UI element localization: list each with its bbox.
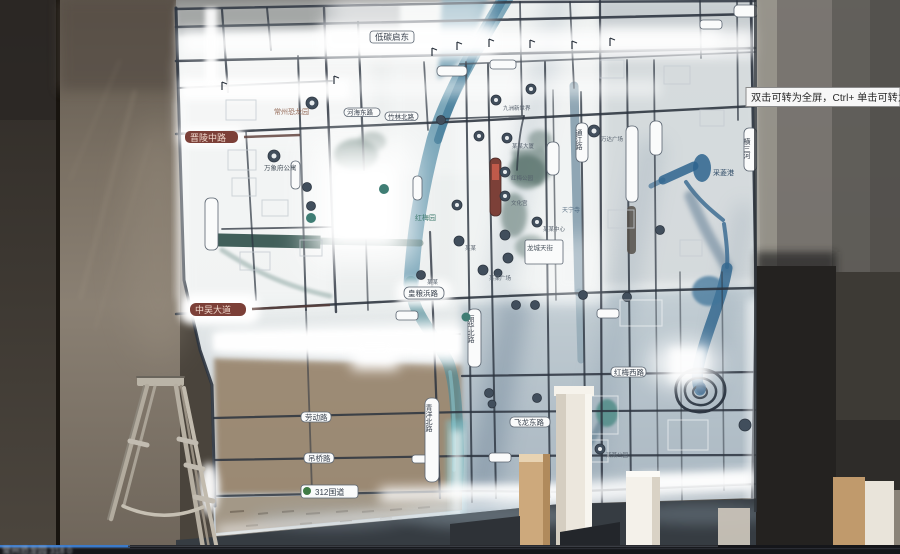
svg-text:文化宫: 文化宫 xyxy=(511,199,528,207)
svg-text:龙城天街: 龙城天街 xyxy=(527,243,554,252)
svg-text:横三河: 横三河 xyxy=(743,137,751,159)
svg-text:双击可转为全屏，Ctrl+ 单击可转为: 双击可转为全屏，Ctrl+ 单击可转为 xyxy=(751,91,900,104)
svg-text:红梅公园: 红梅公园 xyxy=(511,174,534,182)
svg-text:某某大厦: 某某大厦 xyxy=(512,142,535,150)
svg-text:某某公园: 某某公园 xyxy=(606,452,629,459)
svg-text:竹林北路: 竹林北路 xyxy=(388,112,415,121)
svg-text:312国道: 312国道 xyxy=(315,487,344,497)
svg-text:某某: 某某 xyxy=(427,279,439,286)
svg-text:河海东路: 河海东路 xyxy=(347,108,374,117)
svg-text:吊桥路: 吊桥路 xyxy=(308,453,331,463)
svg-text:常州恐龙园: 常州恐龙园 xyxy=(274,107,309,116)
svg-text:九洲新世界: 九洲新世界 xyxy=(503,104,531,112)
svg-text:红梅园: 红梅园 xyxy=(415,213,436,222)
svg-text:某某: 某某 xyxy=(465,245,477,252)
svg-text:天宁寺: 天宁寺 xyxy=(562,206,580,214)
svg-text:中吴大道: 中吴大道 xyxy=(195,304,231,315)
svg-text:飞龙东路: 飞龙东路 xyxy=(514,417,544,427)
svg-text:低碳启东: 低碳启东 xyxy=(375,32,409,42)
svg-text:常州恐龙园 318 0: 常州恐龙园 318 0 xyxy=(2,545,72,554)
svg-text:青洋北路: 青洋北路 xyxy=(425,403,433,433)
svg-text:通江路: 通江路 xyxy=(575,128,583,151)
svg-text:万达广场: 万达广场 xyxy=(601,135,624,143)
svg-text:晋陵中路: 晋陵中路 xyxy=(190,132,226,143)
svg-text:劳动路: 劳动路 xyxy=(305,412,328,422)
svg-text:某某中心: 某某中心 xyxy=(543,225,566,233)
svg-text:万象府公寓: 万象府公寓 xyxy=(264,163,297,172)
svg-text:皇粮浜路: 皇粮浜路 xyxy=(408,288,438,298)
svg-text:采菱港: 采菱港 xyxy=(713,168,734,177)
svg-text:某某广场: 某某广场 xyxy=(489,274,512,282)
svg-text:红梅西路: 红梅西路 xyxy=(614,367,644,377)
